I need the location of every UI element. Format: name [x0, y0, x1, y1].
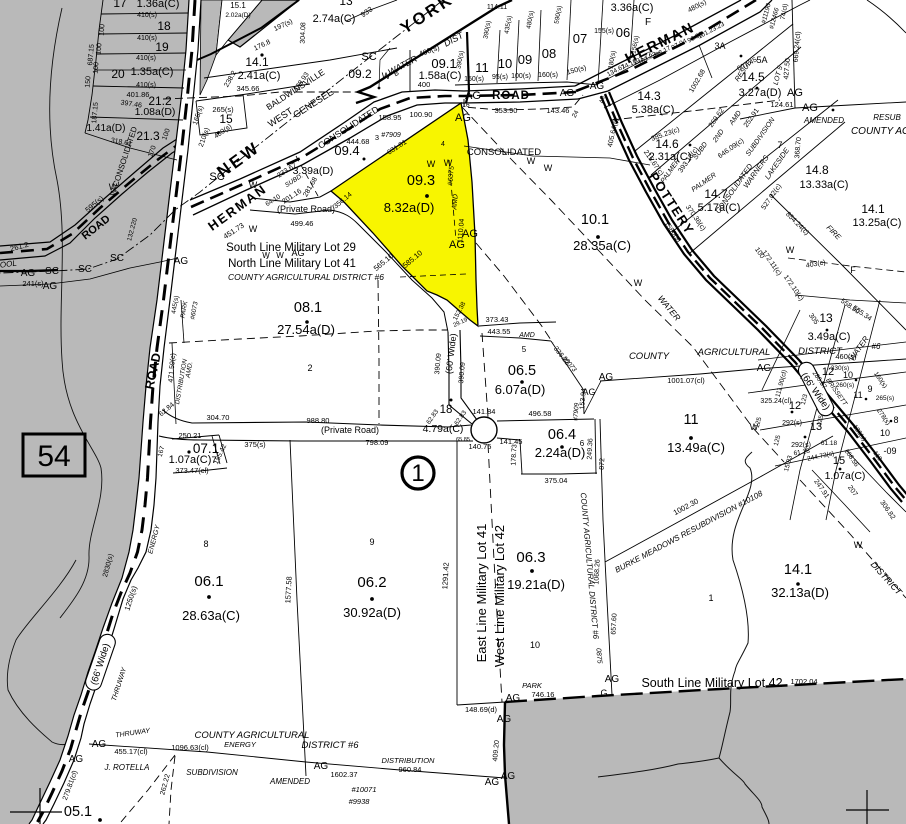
svg-text:AG: AG — [314, 761, 329, 772]
svg-text:150(s): 150(s) — [464, 76, 484, 83]
svg-text:13: 13 — [339, 0, 353, 8]
svg-text:13.33a(C): 13.33a(C) — [800, 179, 849, 191]
svg-text:3A: 3A — [714, 41, 725, 51]
svg-text:AG: AG — [506, 693, 521, 704]
svg-text:14.1: 14.1 — [861, 202, 885, 216]
svg-text:ROAD: ROAD — [492, 90, 530, 102]
svg-text:AMENDED: AMENDED — [269, 777, 310, 786]
svg-text:27.54a(D): 27.54a(D) — [277, 322, 335, 337]
svg-text:249.36: 249.36 — [586, 438, 594, 460]
svg-text:SC: SC — [78, 264, 92, 275]
svg-text:410(s): 410(s) — [136, 82, 156, 89]
svg-text:292(s): 292(s) — [782, 420, 802, 427]
svg-text:07: 07 — [573, 31, 587, 46]
svg-text:AG: AG — [802, 102, 818, 114]
svg-text:8: 8 — [893, 415, 898, 425]
svg-text:12: 12 — [789, 400, 801, 412]
svg-text:South Line Military Lot 42: South Line Military Lot 42 — [641, 676, 782, 690]
svg-text:AMENDED: AMENDED — [803, 116, 844, 125]
svg-text:499.46: 499.46 — [291, 219, 314, 228]
svg-text:09.1: 09.1 — [431, 56, 456, 71]
svg-text:AGRICULTURAL: AGRICULTURAL — [697, 347, 771, 358]
svg-text:1.41a(D): 1.41a(D) — [87, 123, 126, 134]
svg-text:30.92a(D): 30.92a(D) — [343, 605, 401, 620]
svg-text:100: 100 — [96, 43, 104, 55]
svg-text:14.1: 14.1 — [784, 562, 812, 578]
svg-text:AG: AG — [497, 714, 512, 725]
svg-text:06.5: 06.5 — [508, 363, 536, 379]
svg-text:AG: AG — [291, 248, 304, 258]
svg-text:1.07a(C): 1.07a(C) — [169, 454, 212, 466]
svg-text:1577.58: 1577.58 — [283, 576, 293, 604]
svg-text:13.49a(C): 13.49a(C) — [667, 440, 725, 455]
svg-text:RESUB: RESUB — [873, 113, 901, 122]
svg-text:100: 100 — [99, 24, 107, 36]
svg-text:5.38a(C): 5.38a(C) — [632, 104, 675, 116]
svg-text:W: W — [854, 540, 863, 550]
svg-text:17: 17 — [113, 0, 127, 10]
svg-text:08.1: 08.1 — [294, 300, 322, 316]
svg-text:250.21: 250.21 — [179, 431, 202, 440]
svg-text:15.1: 15.1 — [230, 1, 246, 10]
svg-text:3.36a(C): 3.36a(C) — [611, 2, 654, 14]
svg-text:19.21a(D): 19.21a(D) — [507, 577, 565, 592]
svg-text:AMD: AMD — [451, 194, 459, 211]
svg-text:265(s): 265(s) — [876, 395, 894, 402]
svg-text:AG: AG — [92, 739, 107, 750]
svg-text:AMD: AMD — [518, 332, 535, 339]
svg-text:#6: #6 — [872, 342, 881, 351]
svg-text:3: 3 — [375, 133, 379, 142]
svg-text:20: 20 — [111, 67, 125, 81]
svg-text:100.90: 100.90 — [410, 110, 433, 119]
svg-text:373.47(cl): 373.47(cl) — [175, 466, 209, 475]
svg-text:54: 54 — [37, 440, 70, 473]
svg-text:28.35a(C): 28.35a(C) — [573, 238, 631, 253]
svg-text:1602.37: 1602.37 — [330, 770, 357, 779]
svg-text:100(s): 100(s) — [511, 73, 531, 80]
svg-text:1096.63(cl): 1096.63(cl) — [171, 743, 209, 752]
svg-text:AG: AG — [485, 777, 500, 788]
svg-text:1.36a(C): 1.36a(C) — [137, 0, 180, 10]
svg-text:3.49a(C): 3.49a(C) — [808, 331, 851, 343]
svg-text:AG: AG — [462, 228, 478, 240]
svg-text:W: W — [262, 251, 270, 260]
svg-text:5: 5 — [522, 345, 527, 354]
svg-text:W: W — [634, 278, 643, 288]
svg-text:W: W — [249, 180, 258, 190]
svg-text:410(s): 410(s) — [137, 35, 157, 42]
svg-text:COUNTY: COUNTY — [629, 351, 670, 362]
svg-text:East Line Military Lot 41: East Line Military Lot 41 — [474, 524, 489, 663]
svg-text:14.8: 14.8 — [805, 163, 829, 177]
svg-text:AG: AG — [605, 674, 620, 685]
svg-text:AG: AG — [590, 81, 605, 92]
svg-text:8: 8 — [203, 539, 208, 549]
svg-text:160(s): 160(s) — [538, 72, 558, 79]
svg-text:496.58: 496.58 — [529, 409, 552, 418]
svg-text:6.07a(D): 6.07a(D) — [495, 382, 546, 397]
svg-text:6: 6 — [580, 439, 585, 448]
svg-text:#9938: #9938 — [349, 797, 371, 806]
svg-text:W: W — [786, 245, 795, 255]
svg-text:AG: AG — [599, 372, 614, 383]
svg-text:SC: SC — [45, 266, 59, 277]
svg-text:COUNTY AGRICULTURAL DISTRICT #: COUNTY AGRICULTURAL DISTRICT #6 — [228, 272, 384, 282]
svg-text:W: W — [544, 163, 553, 173]
svg-text:2.74a(C): 2.74a(C) — [313, 13, 356, 25]
svg-text:05.1: 05.1 — [64, 804, 92, 820]
svg-text:5A: 5A — [756, 55, 767, 65]
svg-text:265(s): 265(s) — [212, 105, 234, 114]
svg-text:148.69(d): 148.69(d) — [465, 705, 498, 714]
svg-text:AG: AG — [21, 268, 36, 279]
svg-text:09.3: 09.3 — [407, 173, 435, 189]
svg-text:06.2: 06.2 — [357, 574, 386, 591]
svg-text:AG: AG — [582, 387, 595, 397]
svg-text:443.55: 443.55 — [488, 327, 511, 336]
svg-text:10: 10 — [530, 640, 540, 650]
svg-text:872: 872 — [599, 458, 607, 470]
svg-text:455.17(cl): 455.17(cl) — [114, 747, 148, 756]
svg-text:W: W — [527, 156, 536, 166]
svg-text:960.84: 960.84 — [399, 765, 422, 774]
svg-text:8.32a(D): 8.32a(D) — [384, 200, 435, 215]
svg-text:1: 1 — [411, 460, 424, 487]
svg-text:140.75: 140.75 — [469, 442, 492, 451]
svg-text:ENERGY: ENERGY — [224, 740, 257, 749]
svg-text:SC: SC — [110, 253, 124, 264]
svg-text:AG: AG — [174, 256, 189, 267]
svg-text:746.16: 746.16 — [532, 690, 555, 699]
svg-text:14.1: 14.1 — [245, 55, 269, 69]
svg-text:AG: AG — [757, 363, 772, 374]
svg-text:9: 9 — [867, 384, 872, 394]
svg-text:AG: AG — [69, 754, 84, 765]
svg-text:1291.42: 1291.42 — [440, 562, 450, 590]
svg-text:SC: SC — [361, 51, 376, 63]
svg-text:124.61: 124.61 — [771, 100, 794, 109]
svg-text:#10071: #10071 — [351, 785, 376, 794]
svg-text:9: 9 — [369, 537, 374, 547]
svg-text:06.4: 06.4 — [548, 427, 576, 443]
svg-text:06.3: 06.3 — [516, 549, 545, 566]
svg-text:08: 08 — [542, 46, 556, 61]
svg-text:2.02a(D): 2.02a(D) — [225, 12, 250, 19]
svg-text:241(s): 241(s) — [22, 279, 44, 288]
svg-text:10: 10 — [498, 56, 512, 71]
svg-text:(Private Road): (Private Road) — [321, 425, 379, 435]
svg-text:19: 19 — [155, 40, 169, 54]
svg-text:1068.26: 1068.26 — [593, 559, 601, 585]
svg-text:North Line Military Lot 41: North Line Military Lot 41 — [228, 258, 356, 270]
svg-text:10: 10 — [880, 428, 890, 438]
svg-text:2.41a(C): 2.41a(C) — [238, 70, 281, 82]
svg-text:1.35a(C): 1.35a(C) — [131, 66, 174, 78]
svg-text:155(s): 155(s) — [594, 28, 614, 35]
svg-text:06: 06 — [616, 25, 630, 40]
svg-text:AG: AG — [560, 88, 575, 99]
svg-text:4: 4 — [441, 141, 445, 148]
svg-text:G: G — [600, 688, 607, 698]
svg-text:13: 13 — [810, 421, 822, 433]
svg-text:5.17a(C): 5.17a(C) — [698, 202, 741, 214]
svg-text:401.86: 401.86 — [127, 90, 150, 99]
svg-text:PARK: PARK — [522, 681, 543, 690]
svg-text:798.09: 798.09 — [366, 438, 389, 447]
svg-text:325.24(cl): 325.24(cl) — [760, 398, 791, 405]
svg-text:F: F — [850, 265, 856, 275]
svg-text:13: 13 — [819, 311, 833, 325]
svg-text:373.43: 373.43 — [486, 315, 509, 324]
svg-text:141.84: 141.84 — [473, 407, 496, 416]
svg-text:178.73: 178.73 — [510, 444, 518, 466]
svg-text:F: F — [645, 17, 651, 28]
svg-text:1: 1 — [708, 593, 713, 603]
svg-text:1.07a(C): 1.07a(C) — [825, 470, 866, 482]
svg-text:32.13a(D): 32.13a(D) — [771, 585, 829, 600]
svg-text:W: W — [276, 251, 284, 260]
svg-text:10.1: 10.1 — [581, 212, 609, 228]
svg-text:14.3: 14.3 — [637, 89, 661, 103]
svg-text:988.80: 988.80 — [307, 416, 330, 425]
svg-text:345.66: 345.66 — [237, 84, 260, 93]
svg-text:2: 2 — [307, 363, 312, 373]
svg-text:SUBDIVISION: SUBDIVISION — [186, 768, 238, 777]
svg-text:AG: AG — [787, 87, 803, 99]
svg-text:375(s): 375(s) — [244, 440, 266, 449]
svg-text:SC: SC — [209, 171, 224, 183]
svg-text:7: 7 — [777, 140, 782, 150]
svg-text:444.68: 444.68 — [347, 137, 370, 146]
svg-text:1702.04: 1702.04 — [790, 677, 817, 686]
svg-text:16: 16 — [462, 102, 470, 109]
svg-text:09: 09 — [518, 52, 532, 67]
svg-text:2.24a(D): 2.24a(D) — [535, 445, 586, 460]
svg-text:15: 15 — [219, 112, 233, 126]
svg-text:61.18: 61.18 — [821, 440, 838, 447]
svg-text:1001.07(cl): 1001.07(cl) — [667, 376, 705, 385]
svg-text:657.60: 657.60 — [610, 613, 618, 635]
svg-text:DISTRIBUTION: DISTRIBUTION — [382, 756, 436, 765]
svg-text:28.63a(C): 28.63a(C) — [182, 608, 240, 623]
svg-text:11: 11 — [475, 60, 489, 75]
svg-text:06.1: 06.1 — [194, 573, 223, 590]
svg-text:13.25a(C): 13.25a(C) — [853, 217, 902, 229]
svg-text:375.04: 375.04 — [545, 476, 568, 485]
svg-text:304.70: 304.70 — [207, 413, 230, 422]
svg-text:410(s): 410(s) — [137, 12, 157, 19]
svg-text:-09: -09 — [883, 446, 896, 456]
svg-text:18: 18 — [157, 19, 171, 33]
svg-text:AG: AG — [43, 281, 58, 292]
svg-text:21.3: 21.3 — [136, 129, 160, 143]
svg-text:150: 150 — [85, 76, 93, 88]
svg-text:J. ROTELLA: J. ROTELLA — [104, 763, 150, 772]
svg-text:353.90: 353.90 — [495, 106, 518, 115]
svg-text:(Private Road): (Private Road) — [277, 204, 335, 214]
svg-text:#7909: #7909 — [381, 132, 401, 139]
svg-text:COUNTY AGR: COUNTY AGR — [851, 126, 906, 137]
svg-text:460(s): 460(s) — [835, 352, 857, 361]
svg-text:AG: AG — [501, 771, 516, 782]
svg-text:400: 400 — [418, 80, 431, 89]
svg-text:330(s): 330(s) — [831, 365, 849, 372]
svg-text:18: 18 — [440, 404, 453, 416]
svg-text:DISTRICT #6: DISTRICT #6 — [301, 740, 359, 751]
svg-text:95(s): 95(s) — [492, 74, 508, 81]
svg-text:114.11: 114.11 — [487, 4, 507, 11]
svg-text:AG: AG — [455, 112, 471, 124]
svg-text:304.08: 304.08 — [300, 22, 308, 44]
svg-text:09.2: 09.2 — [348, 67, 372, 81]
svg-text:0875: 0875 — [594, 648, 602, 664]
svg-text:11: 11 — [683, 412, 698, 428]
svg-text:11: 11 — [853, 390, 862, 400]
svg-text:W: W — [427, 159, 436, 169]
svg-text:W: W — [249, 224, 258, 234]
svg-text:AG: AG — [465, 90, 481, 102]
svg-text:West Line Military Lot 42: West Line Military Lot 42 — [492, 525, 507, 667]
svg-text:3.27a(D): 3.27a(D) — [739, 87, 782, 99]
svg-text:410(s): 410(s) — [136, 55, 156, 62]
svg-text:158.95: 158.95 — [379, 113, 402, 122]
svg-text:143.46: 143.46 — [547, 106, 570, 115]
svg-text:AG: AG — [449, 239, 465, 251]
svg-text:14.7: 14.7 — [704, 187, 728, 201]
